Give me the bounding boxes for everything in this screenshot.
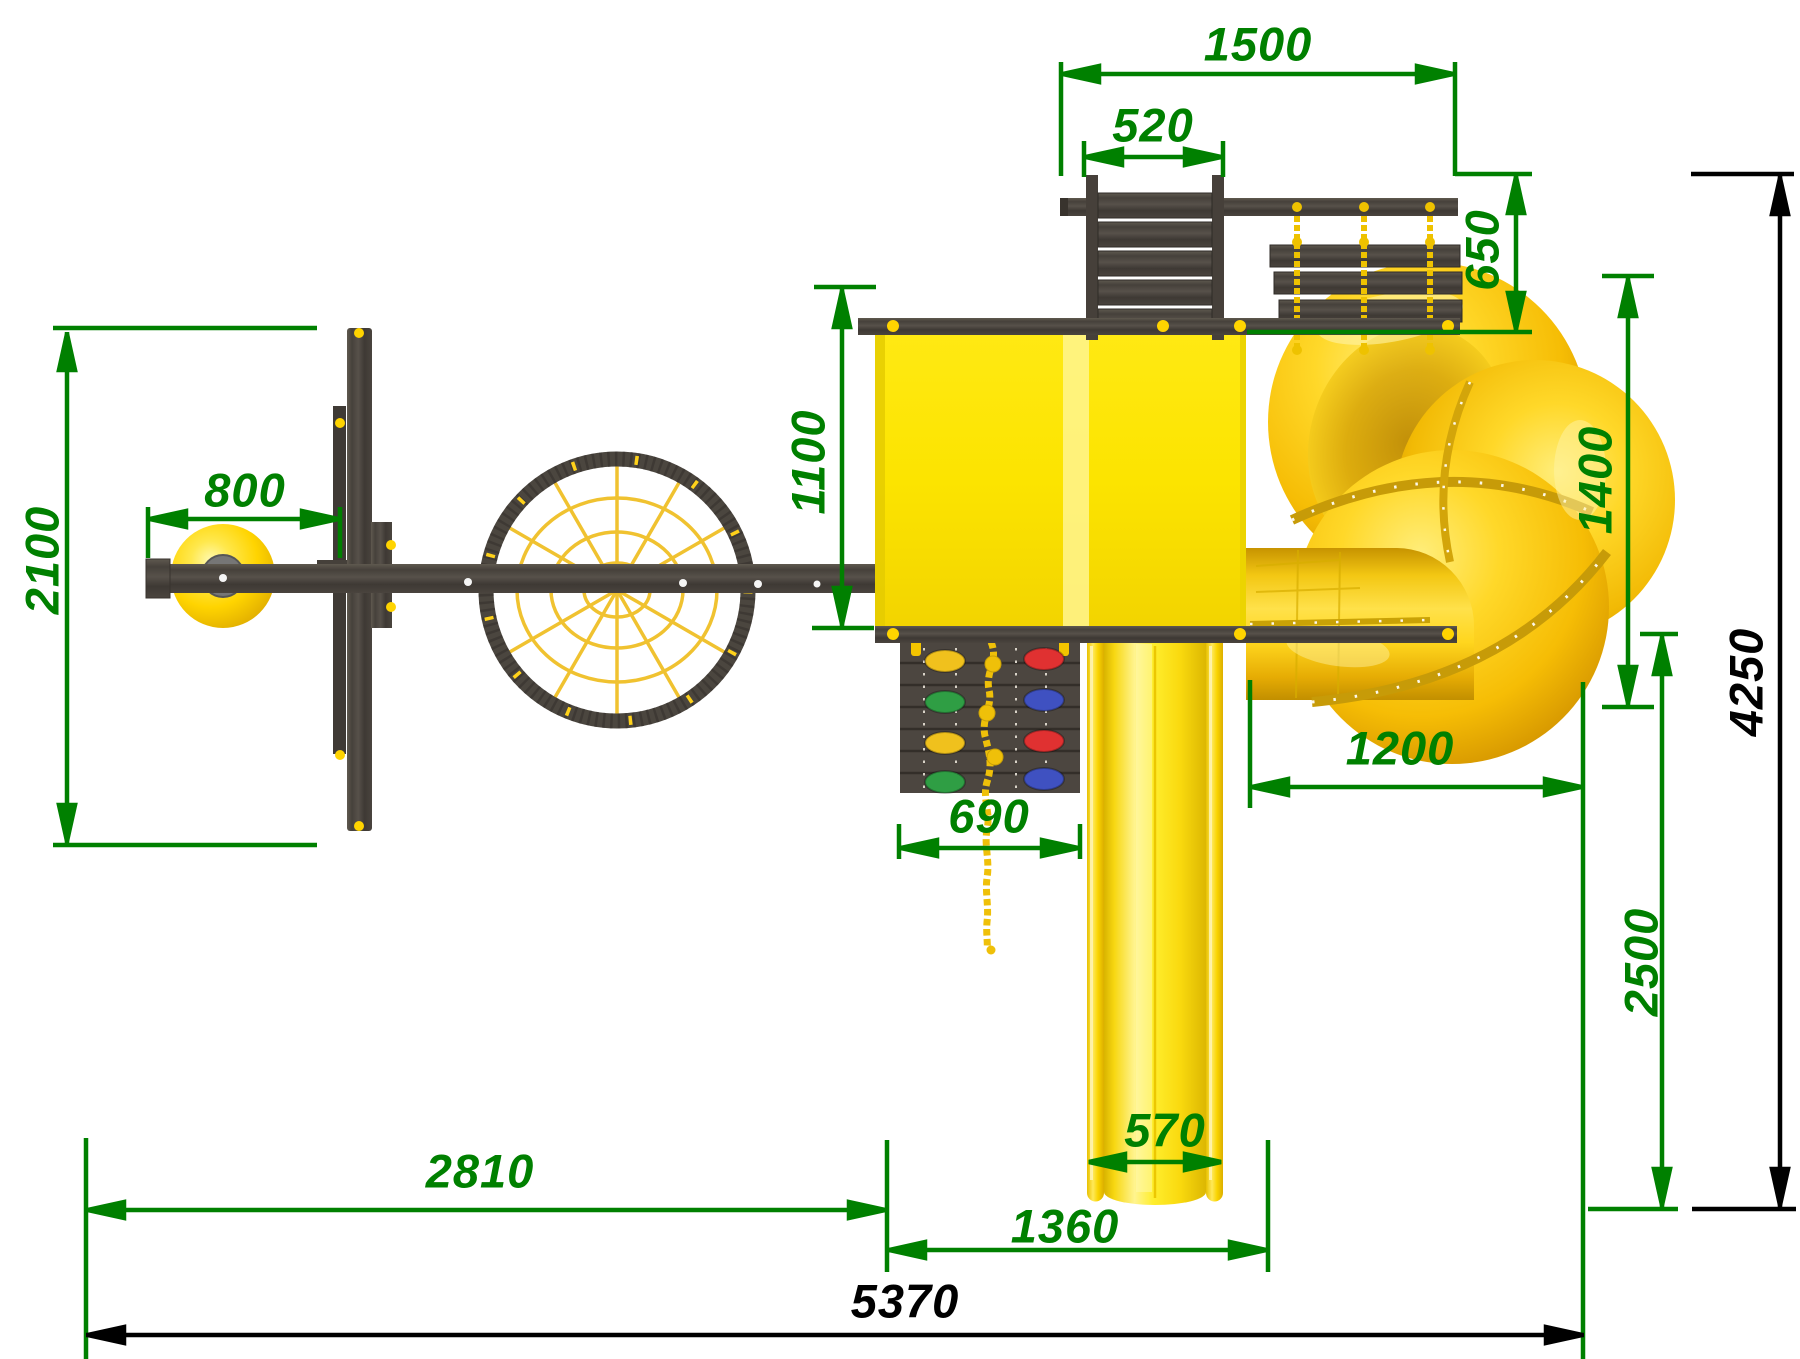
dim-overall-width xyxy=(86,1327,1584,1343)
platform-roof xyxy=(875,332,1246,628)
dim-tube-zone-width xyxy=(1250,680,1583,1359)
dim-label-tube-zone-depth: 1400 xyxy=(1572,426,1619,535)
dim-label-runout-depth: 2500 xyxy=(1618,908,1665,1017)
dim-label-top-span: 1500 xyxy=(1204,21,1313,68)
plan-graphics xyxy=(0,0,1800,1359)
dim-label-swing-side-width: 2810 xyxy=(426,1148,535,1195)
dim-label-slide-zone-width: 1360 xyxy=(1011,1203,1120,1250)
dim-label-swing-offset: 800 xyxy=(204,467,285,514)
dim-label-platform-depth: 1100 xyxy=(785,409,832,514)
dim-label-bridge-depth: 650 xyxy=(1459,209,1506,290)
dim-label-overall-width: 5370 xyxy=(851,1278,960,1325)
dim-label-climb-wall-width: 690 xyxy=(948,793,1029,840)
playground-plan-drawing: 1500 520 650 2100 800 1100 690 1200 1400… xyxy=(0,0,1800,1359)
dim-label-overall-depth: 4250 xyxy=(1723,628,1770,737)
dim-label-ladder-width: 520 xyxy=(1112,102,1193,149)
dim-label-swing-zone-depth: 2100 xyxy=(19,506,66,615)
dim-label-slide-width: 570 xyxy=(1124,1107,1205,1154)
swing-beam xyxy=(146,559,876,598)
dim-label-tube-zone-width: 1200 xyxy=(1346,725,1455,772)
